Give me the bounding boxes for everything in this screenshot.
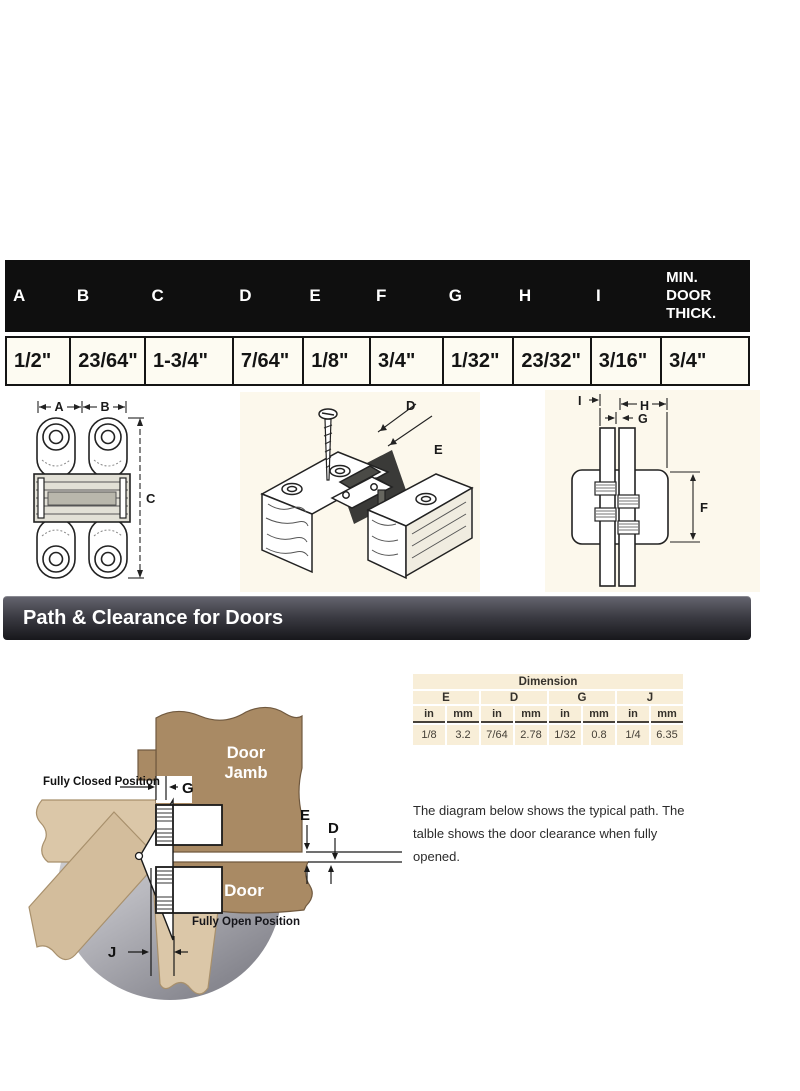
pivot-point [136, 853, 143, 860]
dim-label-f: F [700, 500, 708, 515]
door-path-diagram: Fully Closed Position Fully Open Positio… [10, 688, 410, 1008]
section-banner-title: Path & Clearance for Doors [23, 607, 283, 629]
value-g: 1/32" [444, 338, 514, 384]
unit-header: mm [447, 706, 479, 723]
dim-label-d: D [406, 398, 415, 413]
value-j-mm: 6.35 [651, 725, 683, 745]
unit-header: in [617, 706, 649, 723]
value-d-in: 7/64 [481, 725, 513, 745]
col-header-a: A [5, 260, 69, 332]
value-b: 23/64" [71, 338, 146, 384]
unit-header: in [413, 706, 445, 723]
fully-open-label: Fully Open Position [192, 916, 300, 928]
unit-header: mm [515, 706, 547, 723]
unit-header: in [549, 706, 581, 723]
clearance-table-title: Dimension [413, 674, 683, 689]
value-i: 3/16" [592, 338, 662, 384]
diagram-dim-d: D [328, 820, 339, 837]
clearance-table: Dimension E D G J in mm in mm in mm in m… [411, 672, 685, 747]
group-j: J [617, 691, 683, 704]
value-e-mm: 3.2 [447, 725, 479, 745]
col-header-f: F [368, 260, 441, 332]
value-j-in: 1/4 [617, 725, 649, 745]
unit-header: in [481, 706, 513, 723]
col-header-min-door-thick: MIN. DOOR THICK. [658, 260, 750, 332]
col-header-b: B [69, 260, 144, 332]
col-header-g: G [441, 260, 511, 332]
spec-table-header: A B C D E F G H I MIN. DOOR THICK. [5, 260, 750, 332]
spec-table: A B C D E F G H I MIN. DOOR THICK. 1/2" … [5, 260, 750, 386]
dim-label-b: B [100, 400, 109, 414]
section-banner: Path & Clearance for Doors [3, 596, 751, 640]
hinge-side-view-drawing: I H G F [545, 390, 760, 592]
value-c: 1-3/4" [146, 338, 234, 384]
door-jamb-label-line2: Jamb [224, 764, 267, 782]
dim-label-c: C [146, 491, 156, 506]
value-g-mm: 0.8 [583, 725, 615, 745]
value-f: 3/4" [371, 338, 444, 384]
dim-label-g: G [638, 412, 648, 426]
dim-label-i: I [578, 394, 581, 408]
col-header-c: C [143, 260, 231, 332]
value-h: 23/32" [514, 338, 591, 384]
diagram-dim-j: J [108, 944, 116, 961]
value-e-in: 1/8 [413, 725, 445, 745]
note-paragraph: The diagram below shows the typical path… [413, 799, 693, 868]
group-e: E [413, 691, 479, 704]
unit-header: mm [651, 706, 683, 723]
col-header-h: H [511, 260, 588, 332]
col-header-d: D [231, 260, 301, 332]
dim-label-a: A [54, 400, 63, 414]
value-d-mm: 2.78 [515, 725, 547, 745]
hinge-iso-view-drawing: D E [240, 392, 480, 592]
value-d: 7/64" [234, 338, 304, 384]
diagram-dim-e: E [300, 807, 310, 824]
value-g-in: 1/32 [549, 725, 581, 745]
hinge-front-view-drawing: A B C [28, 394, 238, 592]
spec-table-values: 1/2" 23/64" 1-3/4" 7/64" 1/8" 3/4" 1/32"… [5, 336, 750, 386]
dim-label-e: E [434, 442, 443, 457]
diagram-dim-g: G [182, 780, 194, 797]
value-min-door-thick: 3/4" [662, 338, 748, 384]
door-label: Door [224, 881, 264, 900]
page: A B C D E F G H I MIN. DOOR THICK. 1/2" … [0, 0, 800, 1091]
unit-header: mm [583, 706, 615, 723]
col-header-e: E [301, 260, 368, 332]
group-d: D [481, 691, 547, 704]
dim-label-h: H [640, 399, 649, 413]
value-a: 1/2" [7, 338, 71, 384]
col-header-i: I [588, 260, 658, 332]
group-g: G [549, 691, 615, 704]
value-e: 1/8" [304, 338, 371, 384]
door-jamb-label-line1: Door [227, 744, 266, 762]
fully-closed-label: Fully Closed Position [43, 776, 160, 788]
